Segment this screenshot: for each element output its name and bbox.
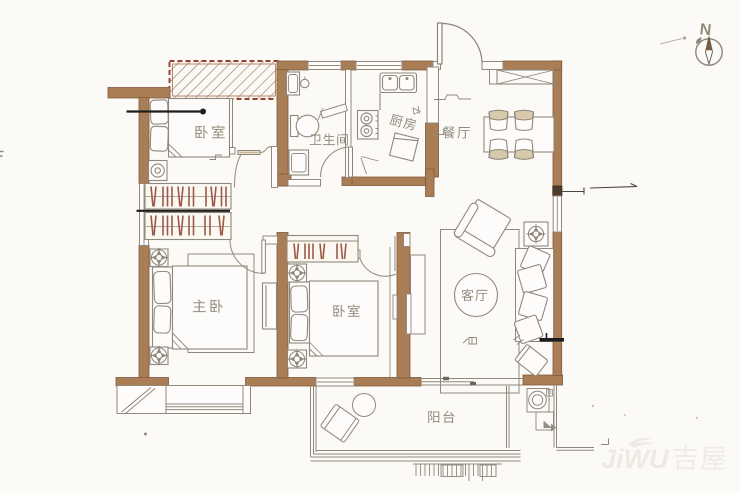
svg-text:JiWU: JiWU — [601, 444, 670, 474]
svg-text:N: N — [699, 21, 712, 39]
